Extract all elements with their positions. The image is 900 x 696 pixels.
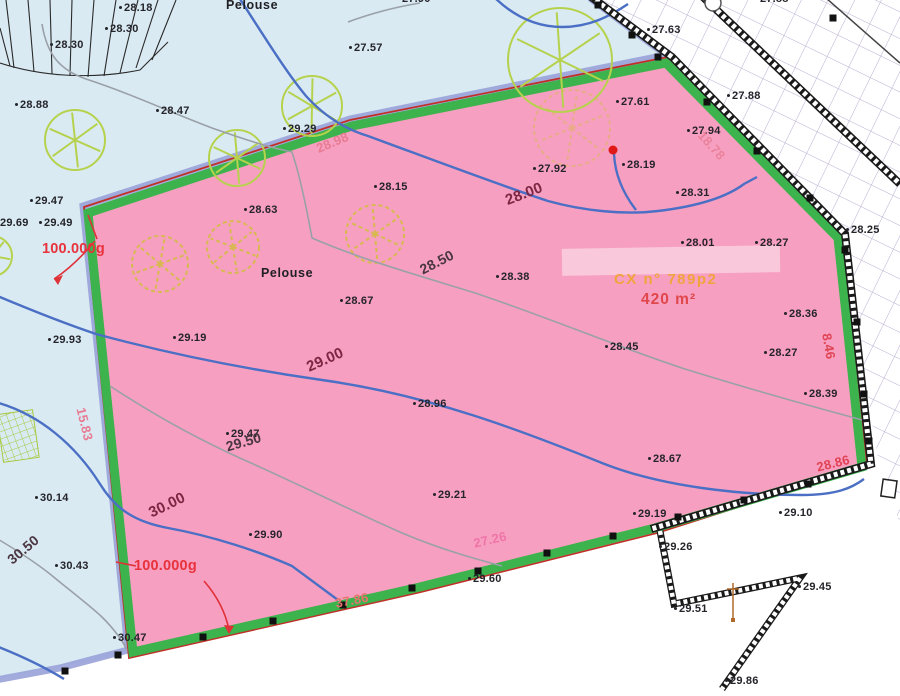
angle-annotation-label: 100.000g [134, 558, 197, 574]
spot-elevation-label: 28.31 [681, 187, 710, 199]
spot-elevation-label: 27.88 [760, 0, 789, 5]
boundary-length-label: 15.83 [73, 406, 96, 442]
spot-elevation-label: 29.86 [730, 675, 759, 687]
spot-elevation-label: 28.39 [809, 388, 838, 400]
spot-elevation-label: 29.21 [438, 489, 467, 501]
spot-elevation-label: 29.19 [638, 508, 667, 520]
spot-elevation-label: 29.10 [784, 507, 813, 519]
spot-elevation-label: 27.92 [538, 163, 567, 175]
parcel-id-label: CX n° 789p2 [614, 271, 717, 288]
spot-elevation-label: 28.01 [686, 237, 715, 249]
spot-elevation-label: 28.27 [769, 347, 798, 359]
spot-elevation-label: 28.96 [418, 398, 447, 410]
spot-elevation-label: 29.26 [664, 541, 693, 553]
spot-elevation-label: 29.49 [44, 217, 73, 229]
spot-elevation-label: 28.30 [55, 39, 84, 51]
spot-elevation-label: 28.67 [345, 295, 374, 307]
spot-elevation-label: 28.19 [627, 159, 656, 171]
parcel-area-label: 420 m² [641, 291, 696, 309]
spot-elevation-label: 30.43 [60, 560, 89, 572]
spot-elevation-label: 28.15 [379, 181, 408, 193]
spot-elevation-label: 28.67 [653, 453, 682, 465]
spot-elevation-label: 27.61 [621, 96, 650, 108]
boundary-length-label: 8.46 [819, 332, 838, 360]
contour-elevation-label: 30.50 [4, 532, 42, 567]
topographic-plan: Pelouse28.1827.9028.3028.3027.5727.6327.… [0, 0, 900, 696]
boundary-length-label: 27.26 [472, 528, 508, 550]
spot-elevation-label: 30.14 [40, 492, 69, 504]
spot-elevation-label: 29.45 [803, 581, 832, 593]
spot-elevation-label: 29.51 [679, 603, 708, 615]
angle-annotation-label: 100.000g [42, 241, 105, 257]
lawn-label: Pelouse [261, 266, 313, 280]
spot-elevation-label: 27.57 [354, 42, 383, 54]
spot-elevation-label: 27.88 [732, 90, 761, 102]
spot-elevation-label: 29.19 [178, 332, 207, 344]
spot-elevation-label: 27.90 [402, 0, 431, 5]
spot-elevation-label: 28.47 [161, 105, 190, 117]
spot-elevation-label: 28.38 [501, 271, 530, 283]
spot-elevation-label: 29.90 [254, 529, 283, 541]
spot-elevation-label: 29.69 [0, 217, 29, 229]
boundary-length-label: 28.98 [314, 129, 351, 156]
labels-layer: Pelouse28.1827.9028.3028.3027.5727.6327.… [0, 0, 900, 696]
contour-elevation-label: 30.00 [146, 489, 188, 521]
spot-elevation-label: 28.25 [851, 224, 880, 236]
boundary-length-label: 28.86 [815, 452, 851, 475]
lawn-label: Pelouse [226, 0, 278, 12]
spot-elevation-label: 28.45 [610, 341, 639, 353]
contour-elevation-label: 29.50 [224, 429, 263, 454]
contour-elevation-label: 29.00 [304, 344, 346, 375]
spot-elevation-label: 29.29 [288, 123, 317, 135]
spot-elevation-label: 28.63 [249, 204, 278, 216]
contour-elevation-label: 28.50 [417, 247, 456, 278]
spot-elevation-label: 29.93 [53, 334, 82, 346]
spot-elevation-label: 29.60 [473, 573, 502, 585]
spot-elevation-label: 28.88 [20, 99, 49, 111]
spot-elevation-label: 28.36 [789, 308, 818, 320]
spot-elevation-label: 30.47 [118, 632, 147, 644]
spot-elevation-label: 28.30 [110, 23, 139, 35]
boundary-length-label: 37.86 [334, 590, 370, 611]
spot-elevation-label: 27.63 [652, 24, 681, 36]
contour-elevation-label: 28.00 [503, 179, 545, 209]
spot-elevation-label: 28.18 [124, 2, 153, 14]
spot-elevation-label: 29.47 [35, 195, 64, 207]
spot-elevation-label: 28.27 [760, 237, 789, 249]
